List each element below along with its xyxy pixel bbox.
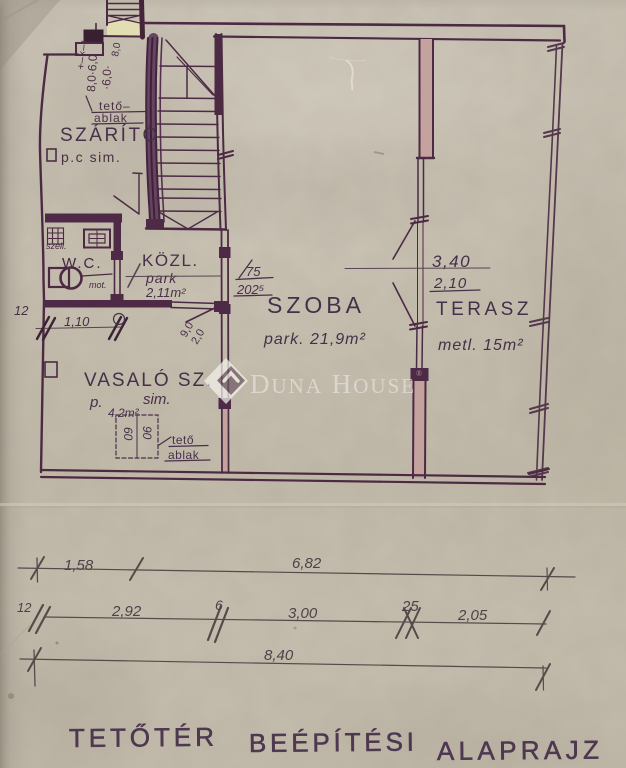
svg-text:3,00: 3,00 xyxy=(288,605,318,622)
svg-text:p.: p. xyxy=(89,394,103,411)
svg-text:8,0: 8,0 xyxy=(110,41,123,57)
svg-text:park. 21,9m²: park. 21,9m² xyxy=(263,331,366,348)
svg-text:25: 25 xyxy=(401,598,419,615)
svg-text:VASALÓ SZ.: VASALÓ SZ. xyxy=(84,369,213,391)
svg-text:12: 12 xyxy=(14,303,29,318)
svg-text:4,2m²: 4,2m² xyxy=(108,406,140,420)
svg-text:KÖZL.: KÖZL. xyxy=(142,251,199,270)
svg-text:BEÉPÍTÉSI: BEÉPÍTÉSI xyxy=(249,727,417,758)
svg-text:1,58: 1,58 xyxy=(64,557,94,574)
svg-text:60: 60 xyxy=(121,427,135,441)
svg-text:W.C.: W.C. xyxy=(62,255,103,272)
svg-text:metl. 15m²: metl. 15m² xyxy=(438,337,524,354)
svg-text:p.c sim.: p.c sim. xyxy=(61,149,121,165)
svg-text:8,0·6,0: 8,0·6,0 xyxy=(84,54,100,92)
svg-text:8,40: 8,40 xyxy=(264,647,294,664)
svg-text:®: ® xyxy=(416,369,422,378)
svg-text:SZOBA: SZOBA xyxy=(267,292,365,318)
svg-text:sim.: sim. xyxy=(143,391,171,408)
svg-text:2,92: 2,92 xyxy=(111,603,142,620)
svg-text:2,10: 2,10 xyxy=(433,275,467,292)
svg-text:1,10: 1,10 xyxy=(64,314,90,329)
svg-text:ALAPRAJZ: ALAPRAJZ xyxy=(437,735,602,766)
svg-text:mot.: mot. xyxy=(89,280,107,290)
svg-text:6: 6 xyxy=(215,597,223,613)
svg-text:SZÁRÍTÓ: SZÁRÍTÓ xyxy=(60,124,160,146)
svg-text:tető: tető xyxy=(172,433,194,447)
svg-text:szell.: szell. xyxy=(46,241,67,251)
svg-text:park: park xyxy=(145,270,177,286)
svg-text:6,82: 6,82 xyxy=(292,555,322,572)
svg-text:3,40: 3,40 xyxy=(432,252,471,271)
svg-text:DUNA HOUSE: DUNA HOUSE xyxy=(250,369,416,399)
svg-text:90: 90 xyxy=(140,426,154,440)
svg-text:12: 12 xyxy=(17,600,32,615)
svg-text:·6,0·: ·6,0· xyxy=(99,65,114,90)
svg-text:2,11m²: 2,11m² xyxy=(145,285,186,300)
svg-text:2,05: 2,05 xyxy=(457,607,488,624)
svg-text:TERASZ: TERASZ xyxy=(436,299,532,320)
svg-text:TETŐTÉR: TETŐTÉR xyxy=(69,722,217,753)
